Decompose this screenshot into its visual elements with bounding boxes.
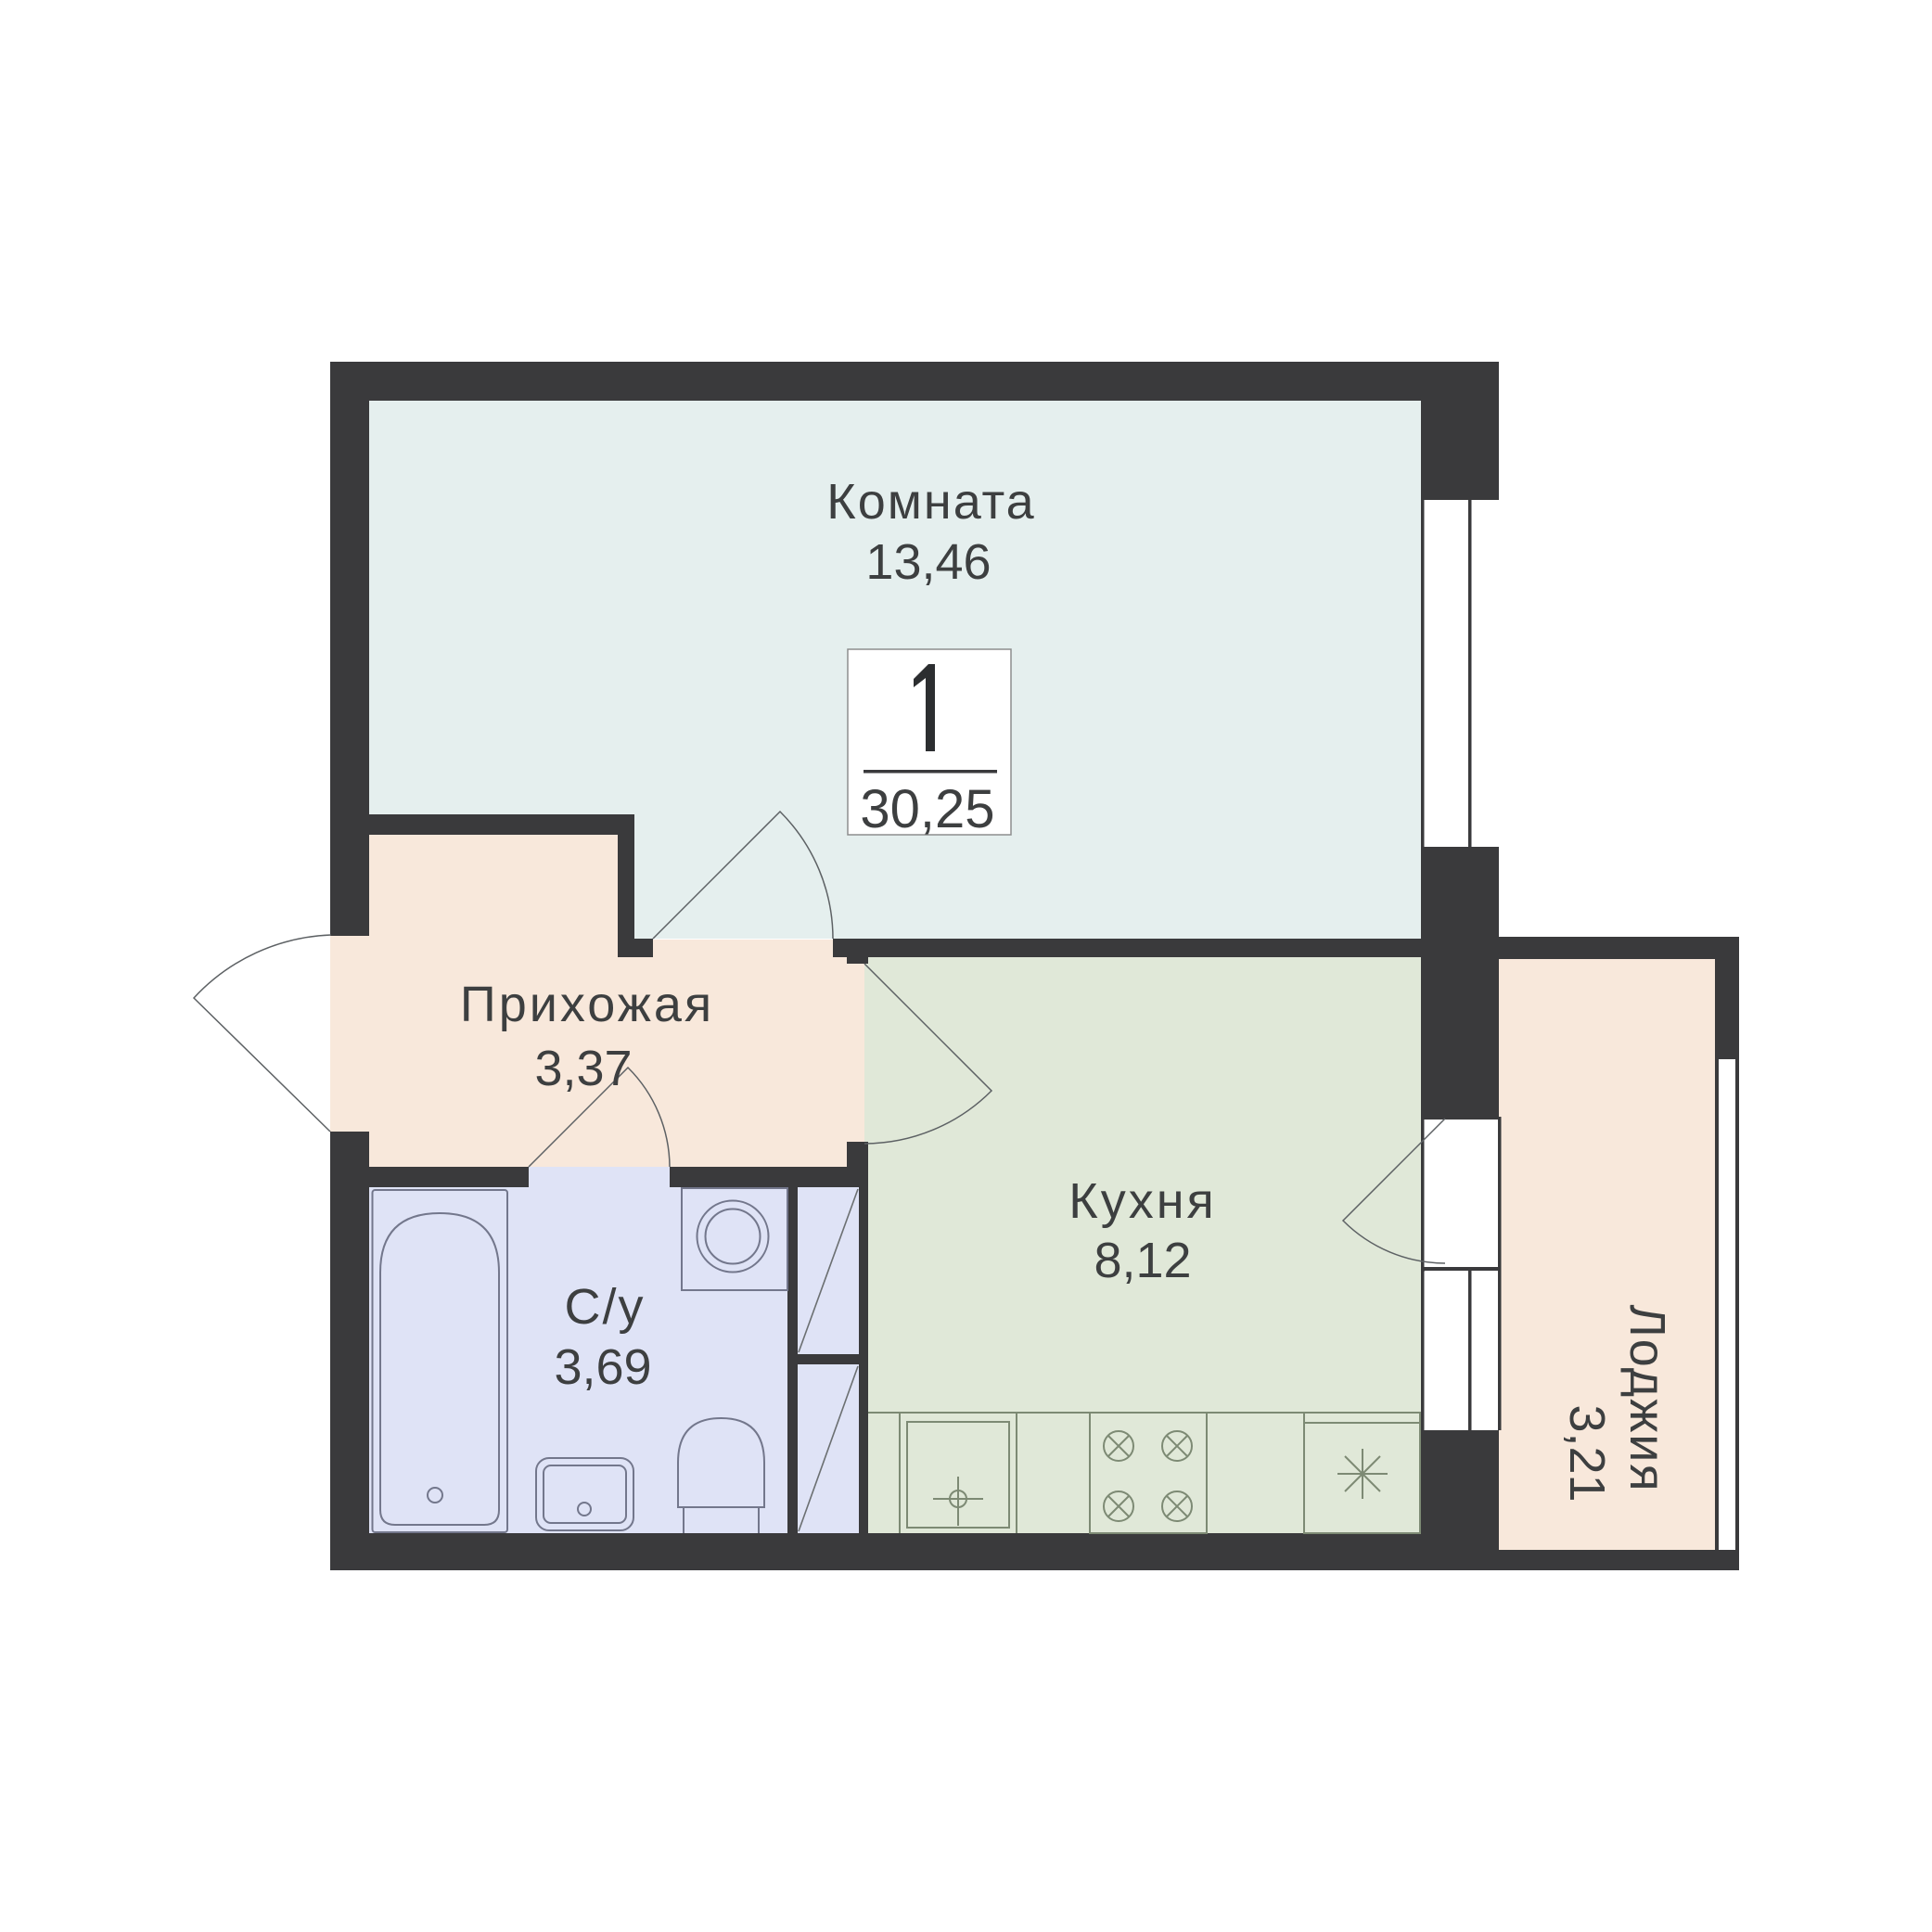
svg-text:3,37: 3,37 [534,1041,632,1096]
svg-text:Прихожая: Прихожая [460,977,714,1032]
svg-text:Лоджия: Лоджия [1619,1304,1675,1492]
svg-text:30,25: 30,25 [860,779,994,839]
svg-text:8,12: 8,12 [1094,1233,1191,1288]
svg-text:С/у: С/у [565,1279,646,1335]
svg-text:3,21: 3,21 [1559,1404,1615,1502]
svg-text:Кухня: Кухня [1068,1173,1217,1229]
svg-text:Комната: Комната [826,474,1035,530]
svg-text:3,69: 3,69 [554,1339,651,1395]
svg-text:13,46: 13,46 [865,534,991,590]
